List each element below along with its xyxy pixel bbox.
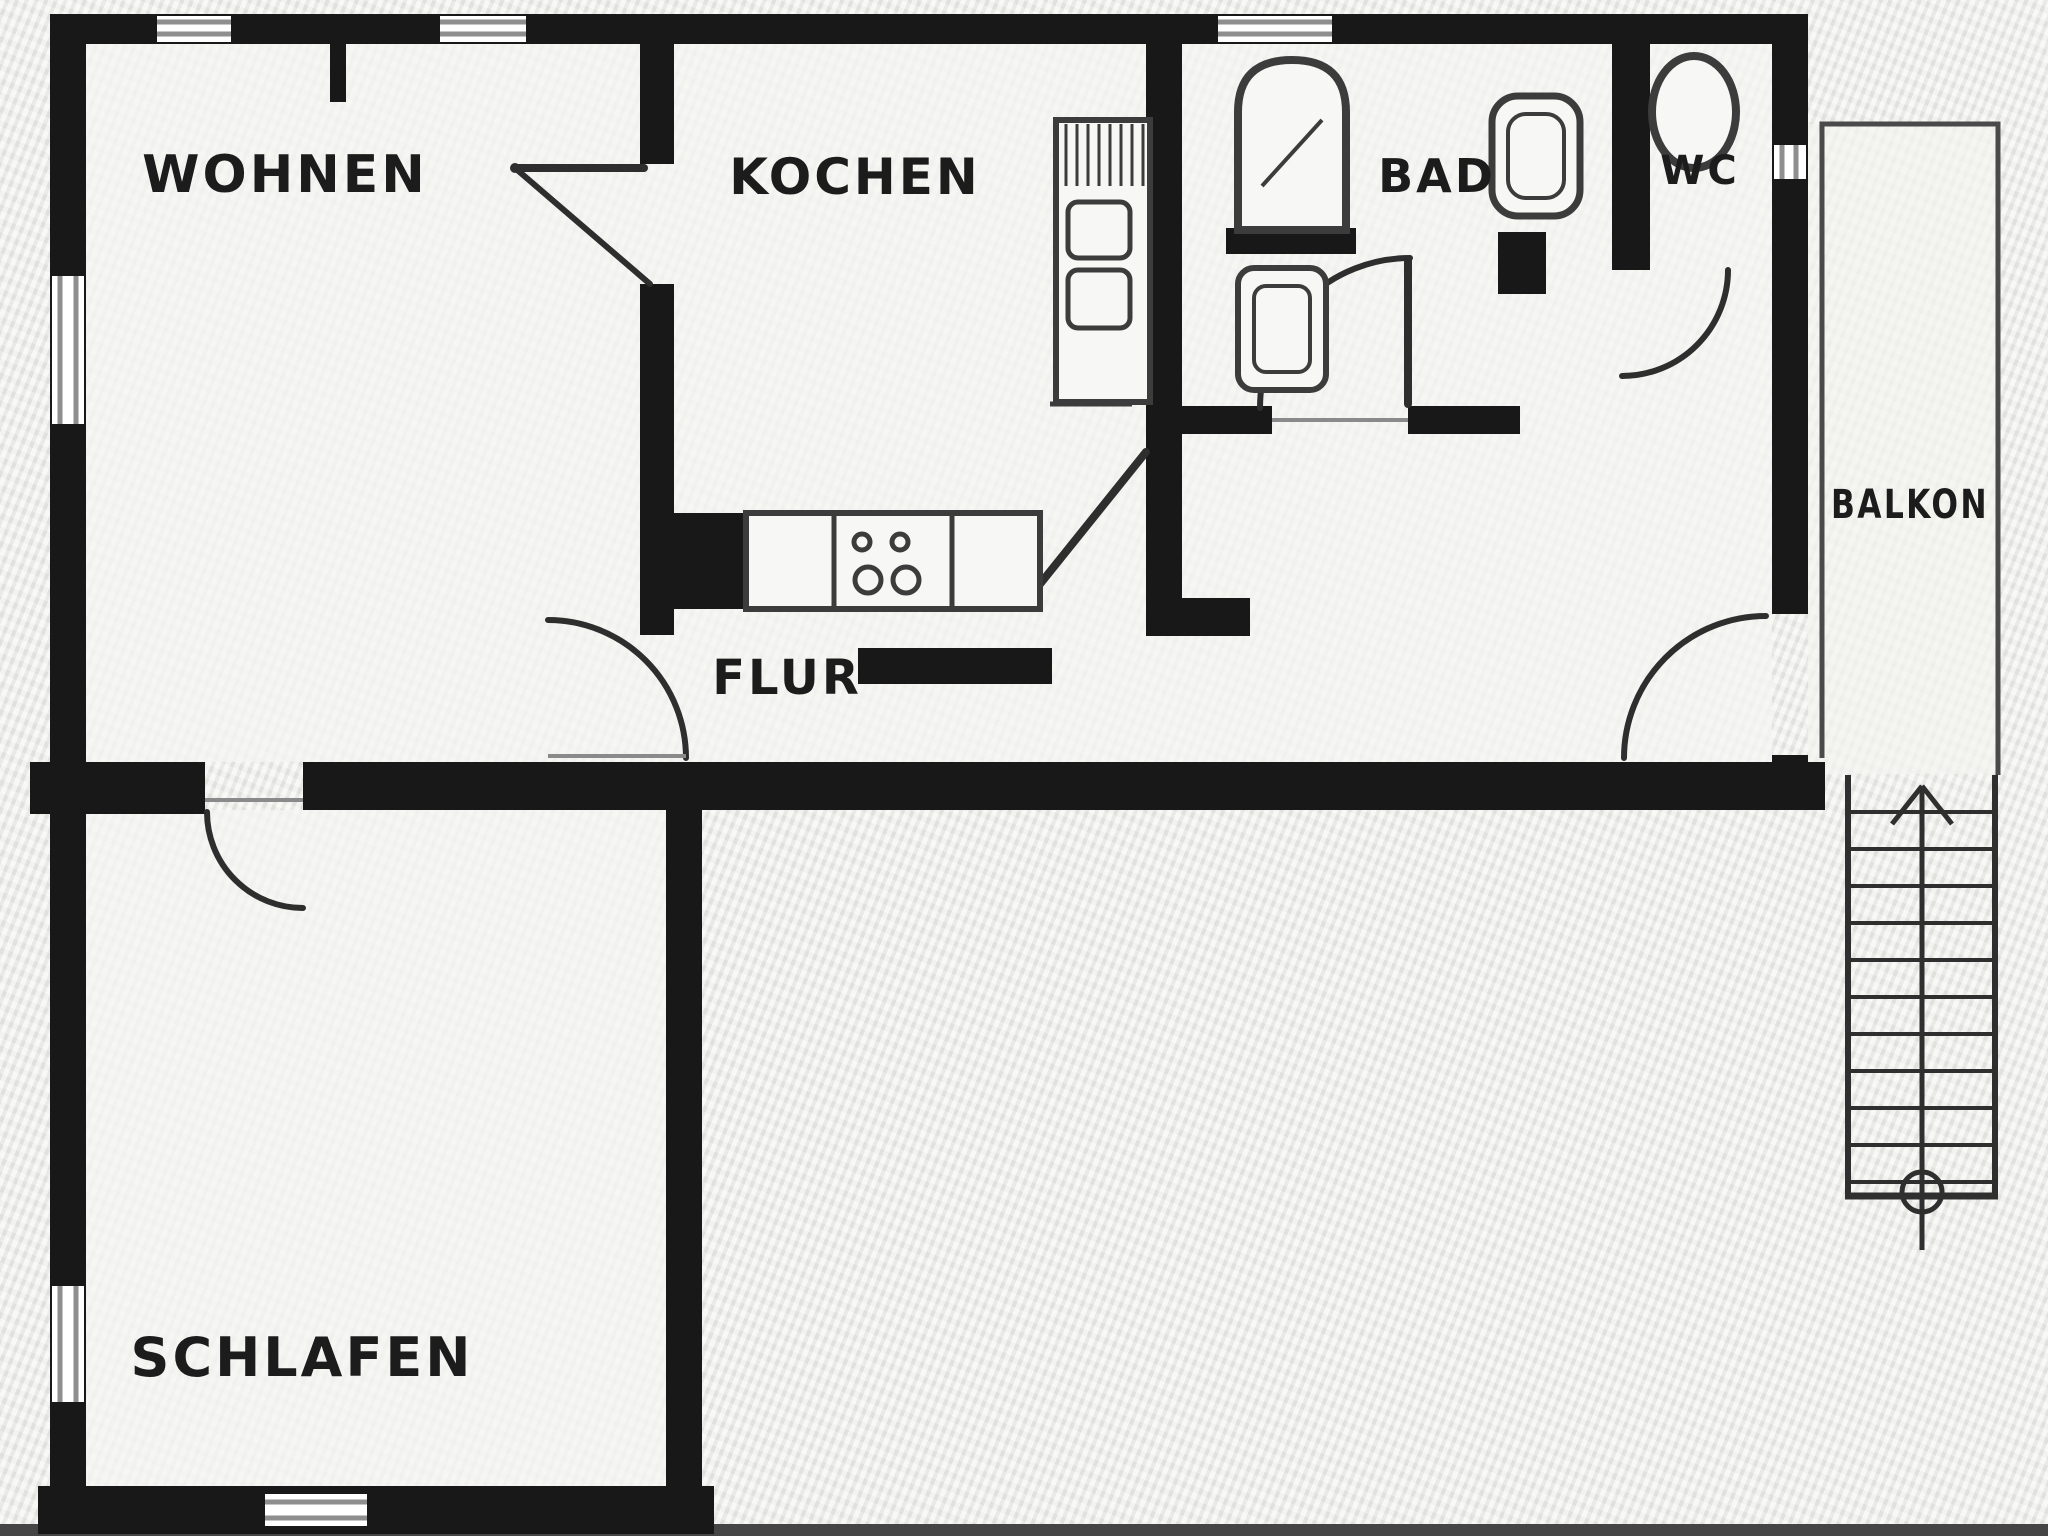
kitchen-tall-cabinet: [1050, 120, 1150, 404]
wall-kitchen-bad-foot: [1146, 598, 1250, 636]
wall-counter-block: [674, 513, 746, 609]
floor-plan-svg: WOHNEN KOCHEN BAD WC BALKON FLUR SCHLAFE…: [0, 0, 2048, 1536]
wall-bad-bottom-left: [1146, 406, 1272, 434]
washbasin: [1238, 268, 1326, 390]
wall-bad-bottom-right: [1408, 406, 1520, 434]
wall-stub-bad-wc: [1498, 232, 1546, 294]
room-label-balkon: BALKON: [1831, 482, 1989, 528]
window-bottom-schlafen: [265, 1494, 367, 1526]
wall-schlafen-bottom: [38, 1486, 714, 1534]
window-right-wc: [1774, 145, 1806, 179]
window-left-schlafen: [52, 1286, 84, 1402]
shower-tub: [1238, 60, 1346, 230]
wall-middle-band-left: [30, 762, 205, 814]
bad-toilet: [1492, 96, 1580, 216]
room-label-wc: WC: [1660, 148, 1739, 194]
wall-wohnen-kochen-upper: [640, 44, 674, 164]
window-top-wohnen: [157, 16, 231, 42]
room-label-wohnen: WOHNEN: [142, 145, 428, 205]
room-label-flur: FLUR: [712, 650, 862, 706]
floor-balcony: [1808, 124, 1998, 774]
kitchen-counter: [746, 513, 1040, 609]
wall-stub-top: [330, 44, 346, 102]
wall-top: [55, 14, 1808, 44]
room-label-schlafen: SCHLAFEN: [131, 1326, 474, 1389]
floor-plan-scan: WOHNEN KOCHEN BAD WC BALKON FLUR SCHLAFE…: [0, 0, 2048, 1536]
wall-right-upper: [1772, 14, 1808, 614]
wall-flur-segment: [858, 648, 1052, 684]
wall-middle-band: [303, 762, 1825, 810]
window-top-bad: [1218, 16, 1332, 42]
room-label-bad: BAD: [1378, 149, 1496, 203]
wall-schlafen-right: [666, 810, 702, 1490]
wall-wohnen-flur: [640, 284, 674, 635]
room-label-kochen: KOCHEN: [729, 148, 981, 206]
window-left-wohnen: [52, 276, 84, 424]
external-staircase: [1845, 775, 1998, 1250]
wall-bad-wc: [1612, 44, 1650, 270]
window-top-kochen: [440, 16, 526, 42]
